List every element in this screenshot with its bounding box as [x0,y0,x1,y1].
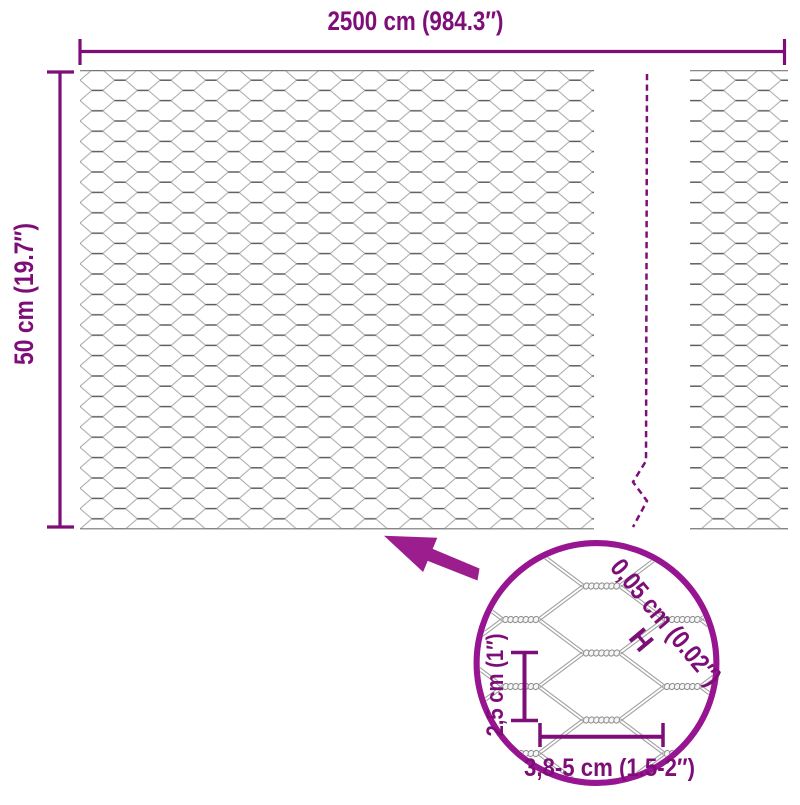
svg-text:50 cm (19.7″): 50 cm (19.7″) [9,223,39,365]
svg-text:2,5 cm (1″): 2,5 cm (1″) [482,634,509,737]
svg-text:3,8-5 cm (1.5-2″): 3,8-5 cm (1.5-2″) [524,754,695,782]
svg-text:2500 cm (984.3″): 2500 cm (984.3″) [328,6,504,36]
